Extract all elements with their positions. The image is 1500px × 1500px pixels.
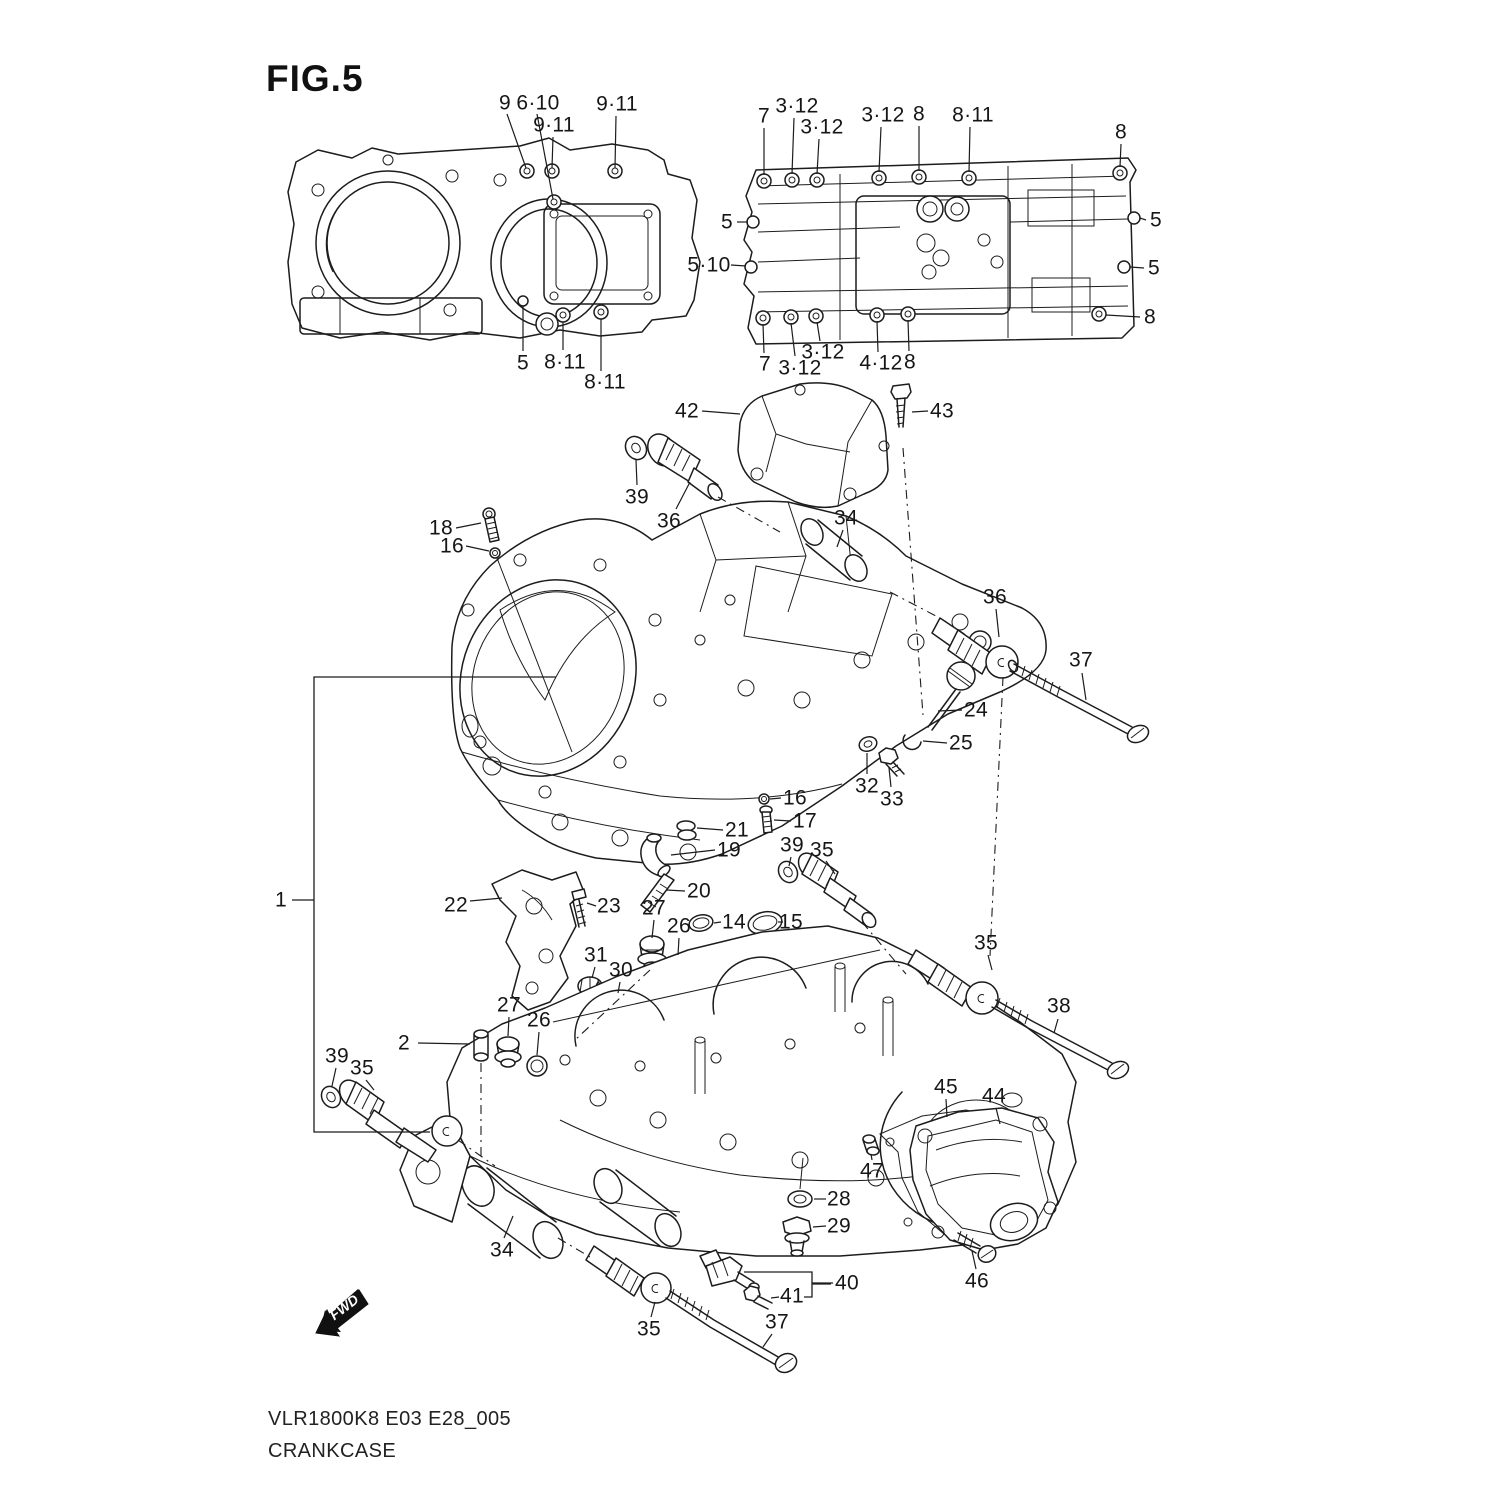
leader-line bbox=[972, 1251, 976, 1269]
leader-line bbox=[651, 1302, 655, 1317]
part-callout[interactable]: 24 bbox=[964, 700, 988, 721]
breather-cover-42 bbox=[738, 383, 889, 507]
part-callout[interactable]: 9 bbox=[499, 93, 511, 114]
part-callout[interactable]: 23 bbox=[597, 896, 621, 917]
part-callout[interactable]: 46 bbox=[965, 1271, 989, 1292]
part-callout[interactable]: 29 bbox=[827, 1216, 851, 1237]
part-callout[interactable]: 16 bbox=[783, 788, 807, 809]
leader-line bbox=[702, 411, 740, 414]
part-callout[interactable]: 47 bbox=[860, 1161, 884, 1182]
part-callout[interactable]: 34 bbox=[490, 1240, 514, 1261]
part-callout[interactable]: 35 bbox=[350, 1058, 374, 1079]
part-callout[interactable]: 5 bbox=[1150, 210, 1162, 231]
part-callout[interactable]: 39 bbox=[625, 487, 649, 508]
part-callout[interactable]: 28 bbox=[827, 1189, 851, 1210]
part-callout[interactable]: 8·11 bbox=[544, 352, 586, 373]
leader-line bbox=[636, 460, 637, 485]
parts-catalog-page: FIG.5 bbox=[0, 0, 1500, 1500]
fwd-arrow: FWD bbox=[316, 1289, 368, 1336]
part-callout[interactable]: 31 bbox=[584, 945, 608, 966]
part-callout[interactable]: 30 bbox=[609, 960, 633, 981]
part-callout[interactable]: 35 bbox=[974, 933, 998, 954]
leader-line bbox=[889, 768, 891, 787]
part-callout[interactable]: 39 bbox=[325, 1046, 349, 1067]
part-callout[interactable]: 39 bbox=[780, 835, 804, 856]
leader-line bbox=[731, 265, 746, 266]
part-callout[interactable]: 14 bbox=[722, 912, 746, 933]
leader-line bbox=[366, 1080, 374, 1090]
part-callout[interactable]: 37 bbox=[765, 1312, 789, 1333]
part-callout[interactable]: 36 bbox=[657, 511, 681, 532]
part-callout[interactable]: 8 bbox=[1115, 122, 1127, 143]
leader-line bbox=[792, 118, 794, 174]
leader-line bbox=[587, 903, 596, 906]
leader-line bbox=[763, 1334, 772, 1347]
part-callout[interactable]: 32 bbox=[855, 776, 879, 797]
part-callout[interactable]: 40 bbox=[835, 1273, 859, 1294]
part-callout[interactable]: 26 bbox=[527, 1010, 551, 1031]
part-callout[interactable]: 27 bbox=[642, 898, 666, 919]
part-callout[interactable]: 26 bbox=[667, 916, 691, 937]
part-callout[interactable]: 16 bbox=[440, 536, 464, 557]
part-callout[interactable]: 8 bbox=[1144, 307, 1156, 328]
part-callout[interactable]: 45 bbox=[934, 1077, 958, 1098]
leader-line bbox=[470, 898, 502, 901]
leader-line bbox=[666, 890, 685, 891]
leader-line bbox=[466, 546, 489, 551]
part-callout[interactable]: 3·12 bbox=[801, 342, 844, 363]
part-callout[interactable]: 19 bbox=[717, 840, 741, 861]
part-callout[interactable]: 8·11 bbox=[584, 372, 626, 393]
crankcase-exploded-diagram: FWD bbox=[0, 0, 1500, 1500]
part-callout[interactable]: 21 bbox=[725, 820, 749, 841]
part-callout[interactable]: 9·11 bbox=[533, 115, 575, 136]
part-callout[interactable]: 44 bbox=[982, 1086, 1006, 1107]
part-callout[interactable]: 3·12 bbox=[800, 117, 843, 138]
part-callout[interactable]: 9·11 bbox=[596, 94, 638, 115]
part-callout[interactable]: 15 bbox=[779, 912, 803, 933]
part-callout[interactable]: 5 bbox=[721, 212, 733, 233]
part-callout[interactable]: 8·11 bbox=[952, 105, 994, 126]
part-callout[interactable]: 34 bbox=[834, 508, 858, 529]
leader-line bbox=[988, 955, 992, 970]
part-callout[interactable]: 42 bbox=[675, 401, 699, 422]
part-callout[interactable]: 33 bbox=[880, 789, 904, 810]
part-callout[interactable]: 7 bbox=[759, 354, 771, 375]
part-callout[interactable]: 17 bbox=[793, 811, 817, 832]
sensor-35-bottom-mid bbox=[586, 1246, 671, 1303]
part-callout[interactable]: 22 bbox=[444, 895, 468, 916]
part-callout[interactable]: 2 bbox=[398, 1033, 410, 1054]
part-callout[interactable]: 3·12 bbox=[775, 96, 818, 117]
part-callout[interactable]: 41 bbox=[780, 1286, 804, 1307]
switch-40-bolt-41 bbox=[700, 1250, 772, 1309]
part-callout[interactable]: 36 bbox=[983, 587, 1007, 608]
part-callout[interactable]: 4·12 bbox=[859, 353, 902, 374]
figure-name-text: CRANKCASE bbox=[268, 1440, 511, 1463]
part-callout[interactable]: 43 bbox=[930, 401, 954, 422]
figure-footer: VLR1800K8 E03 E28_005 CRANKCASE bbox=[268, 1408, 511, 1472]
part-callout[interactable]: 7 bbox=[758, 106, 770, 127]
part-callout[interactable]: 8 bbox=[913, 104, 925, 125]
part-callout[interactable]: 35 bbox=[637, 1319, 661, 1340]
leader-line bbox=[676, 482, 690, 509]
part-callout[interactable]: 5 bbox=[1148, 258, 1160, 279]
part-callout[interactable]: 27 bbox=[497, 995, 521, 1016]
leader-line bbox=[923, 741, 947, 743]
leader-line bbox=[1082, 673, 1086, 700]
leader-line bbox=[1054, 1019, 1058, 1033]
leader-line bbox=[1140, 218, 1146, 220]
part-callout[interactable]: 25 bbox=[949, 733, 973, 754]
retainer-22-bolt-23 bbox=[492, 870, 586, 1010]
part-callout[interactable]: 20 bbox=[687, 881, 711, 902]
part-callout[interactable]: 8 bbox=[904, 352, 916, 373]
bolt-37-right bbox=[1007, 659, 1152, 746]
part-callout[interactable]: 3·12 bbox=[861, 105, 904, 126]
part-callout[interactable]: 1 bbox=[275, 890, 287, 911]
leader-line bbox=[592, 967, 595, 978]
leader-line bbox=[418, 1043, 470, 1044]
crankcase-left-view bbox=[288, 138, 700, 340]
part-callout[interactable]: 5 bbox=[517, 353, 529, 374]
part-callout[interactable]: 38 bbox=[1047, 996, 1071, 1017]
leader-line bbox=[678, 938, 679, 955]
part-callout[interactable]: 37 bbox=[1069, 650, 1093, 671]
bolt-43 bbox=[891, 384, 911, 427]
model-code-text: VLR1800K8 E03 E28_005 bbox=[268, 1408, 511, 1431]
leader-line bbox=[332, 1068, 336, 1086]
leader-line bbox=[456, 523, 481, 528]
leader-line bbox=[714, 922, 721, 923]
crankcase-right-view bbox=[744, 158, 1140, 344]
leader-line bbox=[912, 411, 928, 412]
leader-line bbox=[771, 1297, 779, 1298]
part-callout[interactable]: 5·10 bbox=[687, 255, 730, 276]
part-callout[interactable]: 35 bbox=[810, 840, 834, 861]
part-callout[interactable]: 6·10 bbox=[516, 93, 559, 114]
